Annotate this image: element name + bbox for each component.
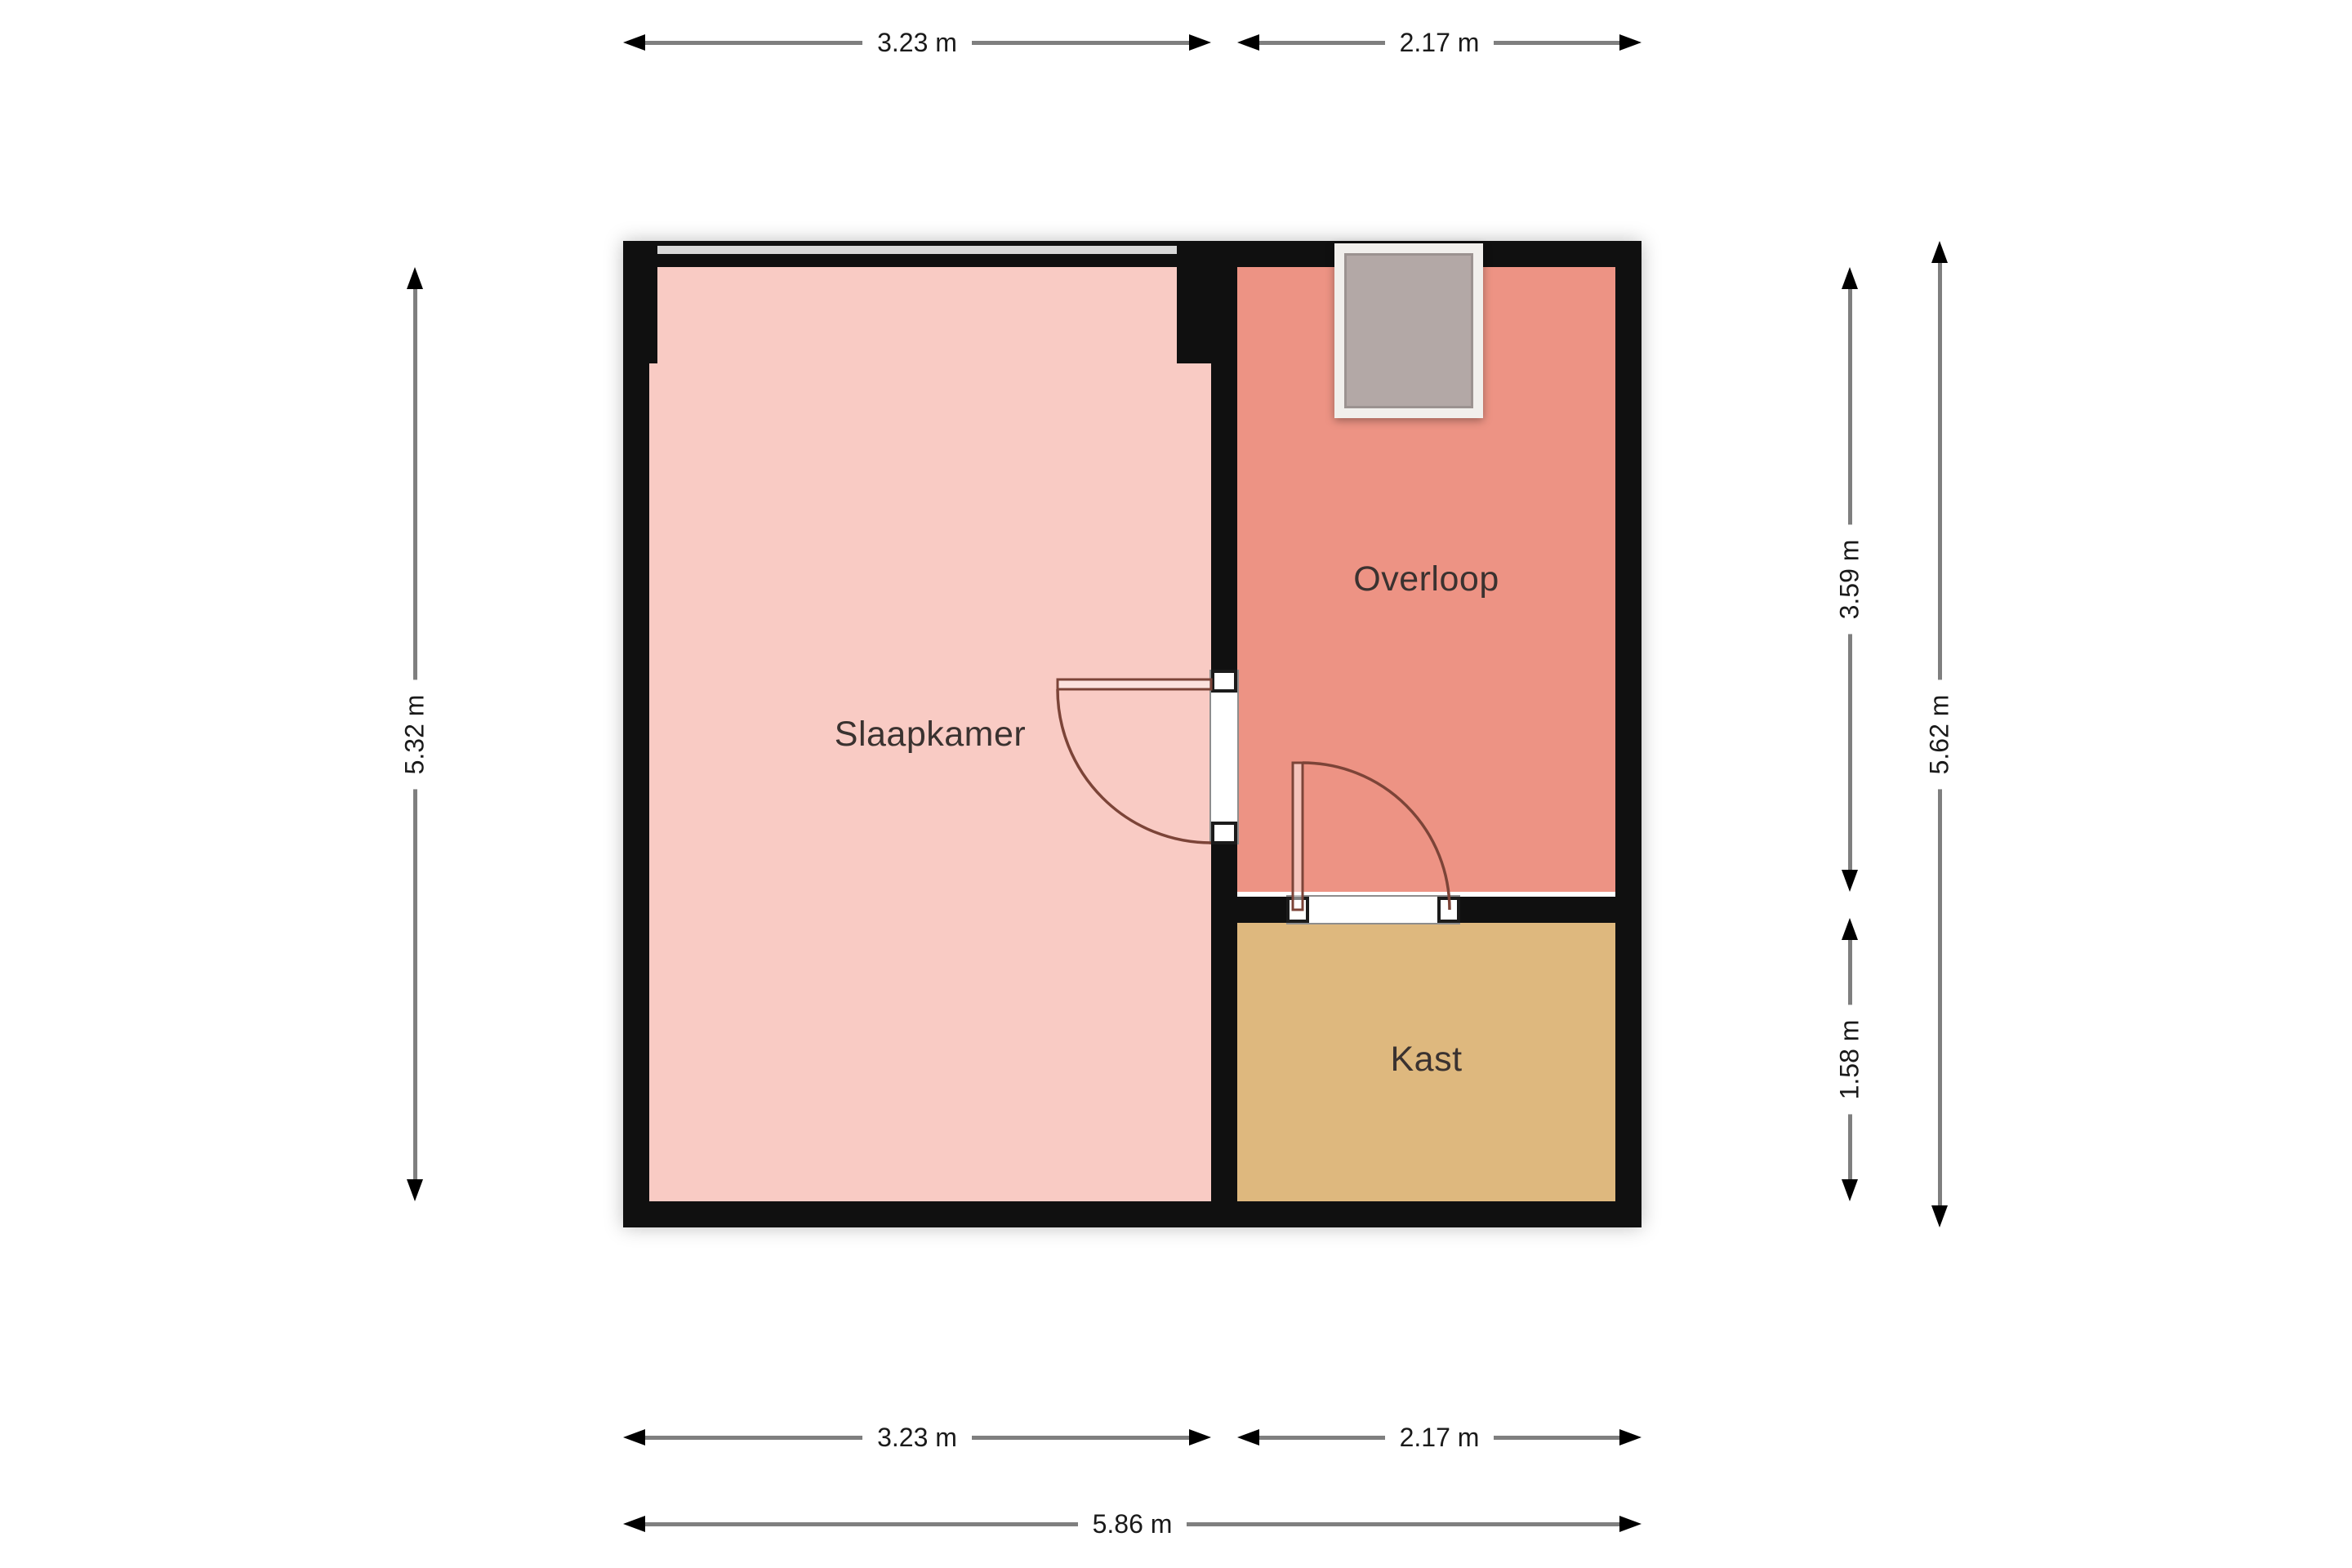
- window-glazing: [657, 246, 1177, 254]
- dim-right-total-height: 5.62 m: [1928, 241, 1951, 1227]
- arrowhead-down-icon: [1842, 870, 1858, 892]
- wall-middle-lower: [1211, 844, 1237, 1201]
- window-post-left: [623, 241, 657, 363]
- arrowhead-right-icon: [1619, 1516, 1641, 1532]
- arrowhead-left-icon: [1237, 1429, 1259, 1445]
- dimension-label: 3.23 m: [862, 25, 972, 60]
- dimension-label: 5.62 m: [1922, 679, 1958, 789]
- dimension-label: 5.86 m: [1078, 1507, 1187, 1542]
- arrowhead-left-icon: [1237, 34, 1259, 51]
- arrowhead-down-icon: [1842, 1179, 1858, 1201]
- arrowhead-up-icon: [407, 267, 423, 289]
- wall-left: [623, 241, 649, 1227]
- wall-kast-left-stub: [1237, 897, 1286, 923]
- room-label-kast: Kast: [1390, 1040, 1462, 1080]
- door-stop: [1211, 670, 1237, 693]
- dim-bottom-total-width: 5.86 m: [623, 1512, 1641, 1535]
- door-stop: [1211, 822, 1237, 844]
- arrowhead-left-icon: [623, 1516, 645, 1532]
- door-stop: [1286, 897, 1309, 923]
- room-label-overloop: Overloop: [1353, 559, 1499, 599]
- dim-bottom-slaapkamer: 3.23 m: [623, 1426, 1211, 1449]
- window-post-right: [1177, 241, 1211, 363]
- dim-right-overloop-height: 3.59 m: [1838, 267, 1861, 892]
- dim-top-slaapkamer: 3.23 m: [623, 31, 1211, 54]
- arrowhead-up-icon: [1842, 267, 1858, 289]
- floor-plan: Slaapkamer Overloop Kast 3.23 m: [0, 0, 2352, 1568]
- dim-top-overloop: 2.17 m: [1237, 31, 1641, 54]
- room-label-slaapkamer: Slaapkamer: [835, 715, 1026, 755]
- stairwell-hatch-opening: [1344, 253, 1473, 408]
- room-slaapkamer: Slaapkamer: [649, 267, 1211, 1201]
- arrowhead-up-icon: [1842, 918, 1858, 940]
- arrowhead-left-icon: [623, 1429, 645, 1445]
- dimension-label: 2.17 m: [1385, 25, 1494, 60]
- door-stop: [1437, 897, 1460, 923]
- dimension-label: 3.59 m: [1833, 525, 1868, 635]
- arrowhead-down-icon: [1931, 1205, 1948, 1227]
- arrowhead-down-icon: [407, 1179, 423, 1201]
- arrowhead-left-icon: [623, 34, 645, 51]
- dim-right-kast-height: 1.58 m: [1838, 918, 1861, 1201]
- dimension-label: 1.58 m: [1833, 1005, 1868, 1115]
- wall-bottom: [623, 1201, 1641, 1227]
- wall-right: [1615, 241, 1641, 1227]
- stairwell-hatch: [1334, 243, 1483, 418]
- arrowhead-up-icon: [1931, 241, 1948, 263]
- door-frame-kast: [1286, 895, 1460, 924]
- arrowhead-right-icon: [1619, 1429, 1641, 1445]
- arrowhead-right-icon: [1619, 34, 1641, 51]
- dimension-label: 3.23 m: [862, 1420, 972, 1455]
- arrowhead-right-icon: [1189, 34, 1211, 51]
- room-kast: Kast: [1237, 918, 1615, 1201]
- arrowhead-right-icon: [1189, 1429, 1211, 1445]
- wall-middle-upper: [1211, 267, 1237, 670]
- wall-top: [623, 241, 1641, 267]
- dim-left-slaapkamer-height: 5.32 m: [403, 267, 426, 1201]
- wall-kast-right: [1460, 897, 1615, 923]
- dimension-label: 2.17 m: [1385, 1420, 1494, 1455]
- door-frame-slaapkamer: [1209, 670, 1239, 844]
- dim-bottom-overloop: 2.17 m: [1237, 1426, 1641, 1449]
- dimension-label: 5.32 m: [398, 679, 433, 789]
